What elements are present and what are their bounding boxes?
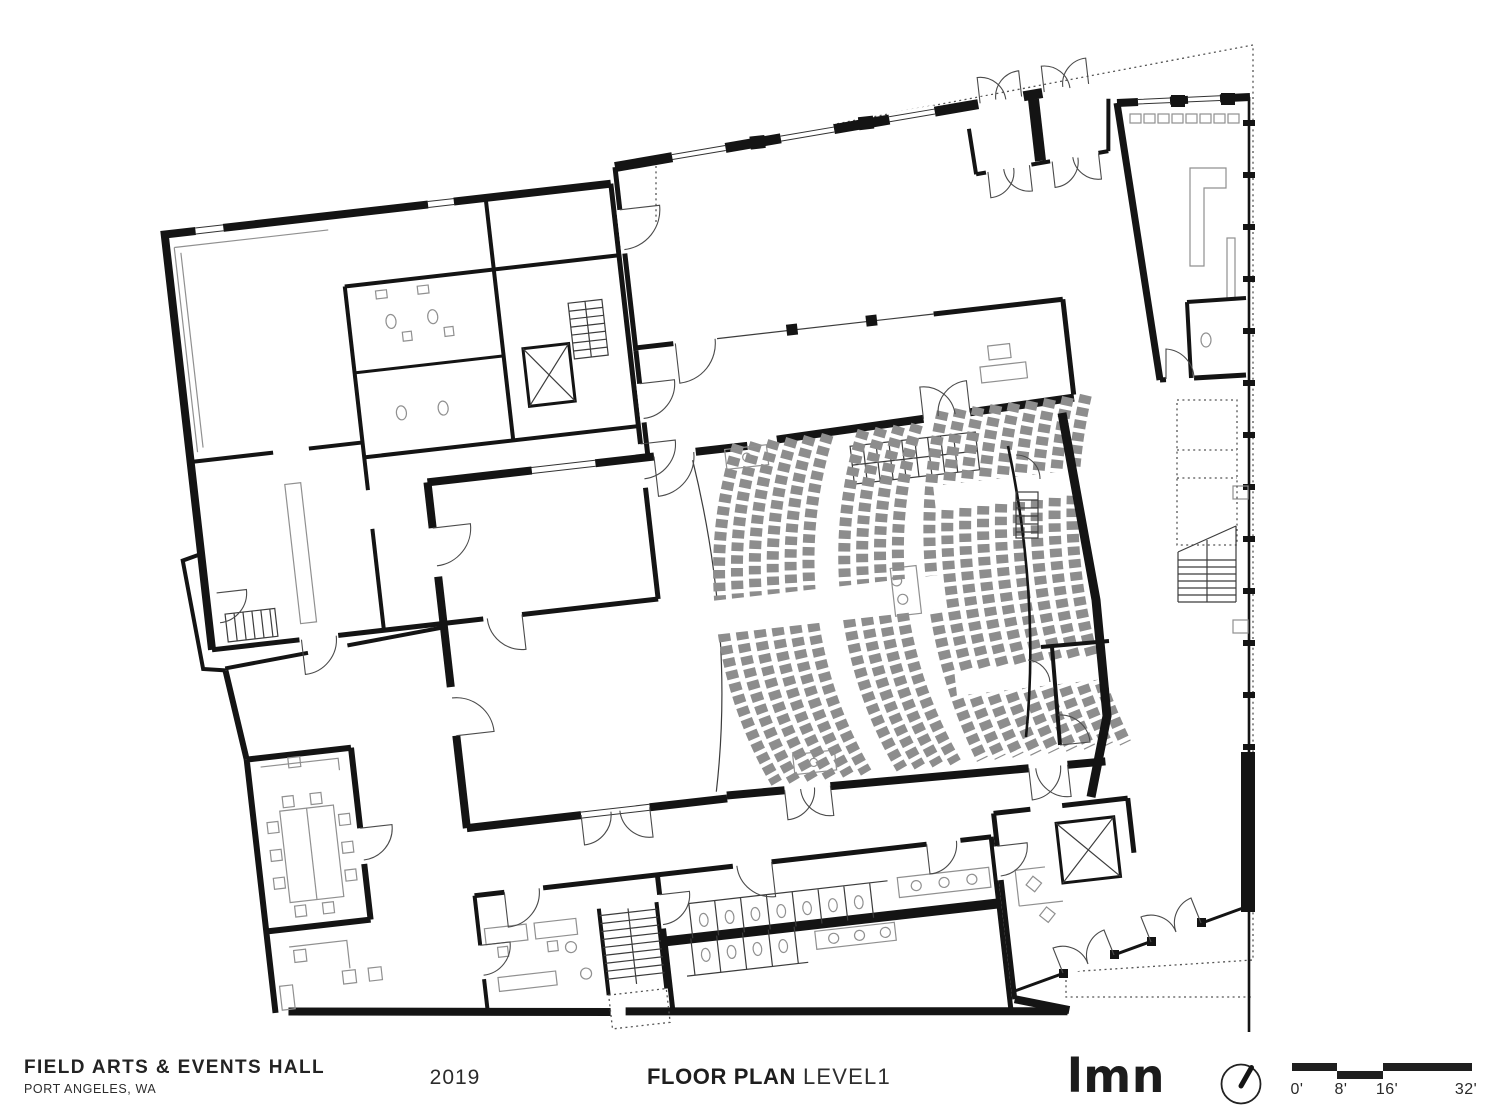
scale-bar-segment: [1337, 1071, 1383, 1079]
project-title-block: FIELD ARTS & EVENTS HALL PORT ANGELES, W…: [24, 1057, 325, 1096]
floor-plan-drawing: [0, 0, 1500, 1112]
sheet-year: 2019: [430, 1066, 481, 1090]
drawing-sheet: FIELD ARTS & EVENTS HALL PORT ANGELES, W…: [0, 0, 1500, 1112]
scale-label-16: 16': [1365, 1081, 1409, 1099]
north-arrow-icon: [1219, 1060, 1265, 1108]
scale-bar-segment: [1383, 1063, 1472, 1071]
project-title: FIELD ARTS & EVENTS HALL: [24, 1057, 325, 1079]
solid-south-pier: [1241, 752, 1255, 912]
scale-label-8: 8': [1319, 1081, 1363, 1099]
scale-bar-segment: [1292, 1063, 1337, 1071]
lmn-logo: LMN: [1067, 1053, 1165, 1099]
sheet-title-level: LEVEL1: [803, 1064, 891, 1089]
sheet-title-main: FLOOR PLAN: [647, 1064, 796, 1089]
scale-label-0: 0': [1275, 1081, 1319, 1099]
project-location: PORT ANGELES, WA: [24, 1082, 325, 1096]
sheet-title: FLOOR PLANLEVEL1: [647, 1064, 891, 1090]
scale-label-32: 32': [1444, 1081, 1488, 1099]
